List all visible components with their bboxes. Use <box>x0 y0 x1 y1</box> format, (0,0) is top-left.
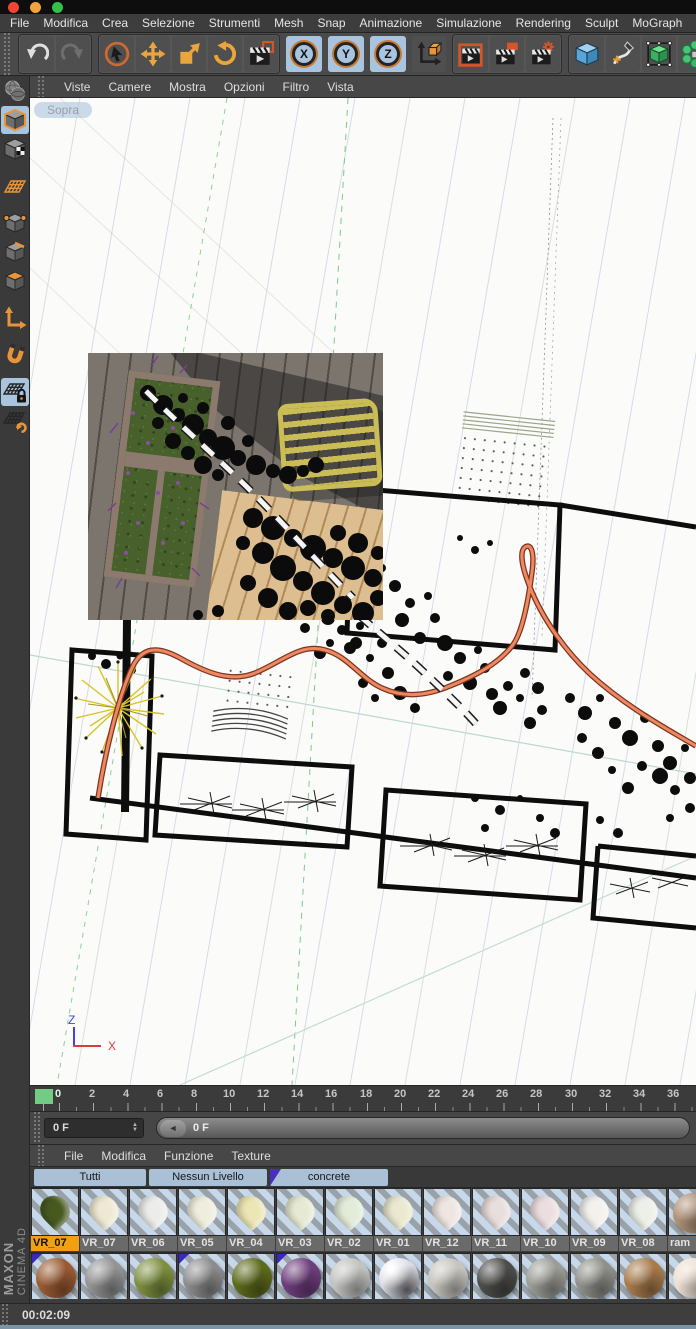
menu-file[interactable]: File <box>10 16 29 30</box>
material-item[interactable] <box>619 1253 667 1299</box>
title-bar <box>0 0 696 14</box>
layer-color-corner-icon <box>277 1254 287 1264</box>
material-sphere-preview <box>673 1258 696 1298</box>
rotate-button[interactable] <box>208 36 242 72</box>
material-item[interactable] <box>129 1253 177 1299</box>
tick-label: 8 <box>191 1088 197 1100</box>
status-bar: 00:02:09 <box>0 1303 696 1325</box>
material-item[interactable] <box>80 1253 128 1299</box>
material-label: VR_02 <box>325 1236 373 1251</box>
material-leaf-preview <box>524 1190 566 1232</box>
menu-mograph[interactable]: MoGraph <box>632 16 682 30</box>
material-sphere-preview <box>281 1258 321 1298</box>
menu-modifica[interactable]: Modifica <box>43 16 88 30</box>
create-group <box>568 34 696 74</box>
menu-snap[interactable]: Snap <box>317 16 345 30</box>
axis-z-line <box>73 1027 75 1045</box>
make-editable-button[interactable] <box>1 77 29 105</box>
menu-rendering[interactable]: Rendering <box>516 16 571 30</box>
material-label: VR_10 <box>521 1236 569 1251</box>
scale-button[interactable] <box>172 36 206 72</box>
material-label: VR_03 <box>276 1236 324 1251</box>
points-mode-icon <box>3 211 27 235</box>
tick-label: 2 <box>89 1088 95 1100</box>
right-column: Viste Camere Mostra Opzioni Filtro Vista… <box>30 76 696 1303</box>
render-time: 00:02:09 <box>22 1308 70 1322</box>
axis-x-label: X <box>108 1039 116 1053</box>
timeline-ruler[interactable]: 0 2 4 6 8 10 12 14 16 18 20 22 24 26 28 … <box>30 1085 696 1112</box>
tick-label: 30 <box>565 1088 577 1100</box>
material-item[interactable]: VR_01 <box>374 1188 422 1252</box>
slider-frame-value: 0 F <box>193 1122 209 1134</box>
maxon-branding: MAXON CINEMA 4D <box>1 1227 28 1295</box>
material-sphere-preview <box>379 1258 419 1298</box>
material-item[interactable] <box>668 1253 696 1299</box>
axis-z-label: Z <box>68 1013 75 1027</box>
undo-button[interactable] <box>20 36 54 72</box>
make-editable-icon <box>3 79 27 103</box>
axis-x-line <box>73 1045 101 1047</box>
render-view-button[interactable] <box>454 36 488 72</box>
viewport-top-view[interactable]: Sopra <box>30 98 696 1085</box>
material-leaf-preview <box>475 1190 517 1232</box>
subdivision-surface-button[interactable] <box>642 36 676 72</box>
polygons-mode-icon <box>3 269 27 293</box>
render-group <box>452 34 562 74</box>
material-label: VR_01 <box>374 1236 422 1251</box>
material-manager-menu: File Modifica Funzione Texture <box>30 1145 696 1167</box>
material-sphere-preview <box>232 1258 272 1298</box>
tick-label: 12 <box>257 1088 269 1100</box>
axis-mode-icon <box>3 306 27 330</box>
layer-tab-tutti[interactable]: Tutti <box>34 1169 146 1186</box>
render-overlay <box>88 353 383 620</box>
layer-tab-concrete[interactable]: concrete <box>270 1169 388 1186</box>
snapping-magnet-icon <box>3 343 27 367</box>
material-item[interactable] <box>374 1253 422 1299</box>
render-preview-region <box>88 353 383 620</box>
axis-x-icon: X <box>292 42 316 66</box>
stepper-down-icon[interactable]: ▼ <box>132 1128 138 1133</box>
tick-label: 14 <box>291 1088 303 1100</box>
record-keyframe-icon <box>248 41 274 67</box>
material-item[interactable] <box>276 1253 324 1299</box>
move-button[interactable] <box>136 36 170 72</box>
material-sphere-preview <box>134 1258 174 1298</box>
material-item[interactable]: VR_10 <box>521 1188 569 1252</box>
mat-menu-modifica[interactable]: Modifica <box>101 1149 146 1163</box>
material-sphere-preview <box>36 1258 76 1298</box>
move-icon <box>140 41 166 67</box>
material-item[interactable]: VR_05 <box>178 1188 226 1252</box>
live-selection-icon <box>104 41 130 67</box>
mat-menu-texture[interactable]: Texture <box>231 1149 270 1163</box>
model-mode-button[interactable] <box>1 106 29 134</box>
slider-left-arrow-icon[interactable]: ◄ <box>160 1120 186 1137</box>
tick-label: 10 <box>223 1088 235 1100</box>
tick-label: 16 <box>325 1088 337 1100</box>
material-sphere-preview <box>526 1258 566 1298</box>
material-item[interactable] <box>472 1253 520 1299</box>
layer-tab-label: concrete <box>308 1171 350 1183</box>
add-cube-button[interactable] <box>570 36 604 72</box>
layer-tab-nessun-livello[interactable]: Nessun Livello <box>149 1169 267 1186</box>
tick-label: 24 <box>462 1088 474 1100</box>
subdivision-surface-icon <box>646 41 672 67</box>
redo-icon <box>61 42 85 66</box>
viewport-menu-grip[interactable] <box>36 76 46 97</box>
tick-label: 18 <box>360 1088 372 1100</box>
material-item[interactable]: ram <box>668 1188 696 1252</box>
material-sphere-preview <box>85 1258 125 1298</box>
viewport-menu-bar: Viste Camere Mostra Opzioni Filtro Vista <box>30 76 696 98</box>
main-menu-bar: File Modifica Crea Selezione Strumenti M… <box>0 14 696 33</box>
pergola-grid-upper <box>455 412 556 508</box>
material-label: VR_08 <box>619 1236 667 1251</box>
tick-label: 32 <box>599 1088 611 1100</box>
frame-controls-grip[interactable] <box>32 1112 42 1144</box>
main-area: MAXON CINEMA 4D Viste Camere Mostra Opzi… <box>0 76 696 1303</box>
material-item[interactable] <box>423 1253 471 1299</box>
material-label: VR_05 <box>178 1236 226 1251</box>
render-footpath-dashes <box>146 391 353 598</box>
material-item[interactable]: VR_09 <box>570 1188 618 1252</box>
material-sphere-preview <box>477 1258 517 1298</box>
toolbar-grip[interactable] <box>2 33 12 75</box>
material-leaf-preview <box>377 1190 419 1232</box>
menu-simulazione[interactable]: Simulazione <box>436 16 501 30</box>
axis-z-icon: Z <box>376 42 400 66</box>
window-bottom-edge <box>0 1325 696 1329</box>
material-item[interactable] <box>227 1253 275 1299</box>
menu-mesh[interactable]: Mesh <box>274 16 303 30</box>
add-spline-button[interactable] <box>606 36 640 72</box>
material-leaf-preview <box>622 1190 664 1232</box>
material-item[interactable]: VR_04 <box>227 1188 275 1252</box>
scale-icon <box>176 41 202 67</box>
tick-label: 28 <box>530 1088 542 1100</box>
undo-group <box>18 34 92 74</box>
mat-menu-file[interactable]: File <box>64 1149 83 1163</box>
tick-label: 4 <box>123 1088 129 1100</box>
material-item[interactable] <box>178 1253 226 1299</box>
material-leaf-preview <box>279 1190 321 1232</box>
material-item[interactable]: VR_11 <box>472 1188 520 1252</box>
material-item[interactable]: VR_07 <box>31 1188 79 1252</box>
axis-z-lock-button[interactable]: Z <box>370 36 406 72</box>
material-row-2 <box>30 1253 696 1299</box>
pergola-grid-lower <box>211 668 292 739</box>
workplane-mode-button[interactable] <box>1 172 29 200</box>
layer-tab-label: Tutti <box>80 1171 101 1183</box>
vp-menu-vista[interactable]: Vista <box>327 80 353 94</box>
transform-group <box>98 34 280 74</box>
material-leaf-preview <box>426 1190 468 1232</box>
material-leaf-preview <box>181 1190 223 1232</box>
material-item[interactable]: VR_06 <box>129 1188 177 1252</box>
material-layer-tabs: Tutti Nessun Livello concrete <box>30 1167 696 1188</box>
current-frame-field[interactable]: 0 F ▲ ▼ <box>44 1118 144 1138</box>
material-sphere-preview <box>624 1258 664 1298</box>
menu-sculpt[interactable]: Sculpt <box>585 16 618 30</box>
material-label: VR_04 <box>227 1236 275 1251</box>
array-clone-icon <box>682 41 696 67</box>
tick-label: 34 <box>633 1088 645 1100</box>
render-picture-viewer-button[interactable] <box>490 36 524 72</box>
tick-label: 6 <box>157 1088 163 1100</box>
layer-tab-label: Nessun Livello <box>172 1171 244 1183</box>
axis-y-lock-button[interactable]: Y <box>328 36 364 72</box>
material-leaf-preview <box>328 1190 370 1232</box>
frame-slider[interactable]: ◄ 0 F <box>156 1117 690 1139</box>
coordinate-system-icon <box>416 41 442 67</box>
material-item[interactable] <box>31 1253 79 1299</box>
material-sphere-preview <box>575 1258 615 1298</box>
status-bar-grip[interactable] <box>0 1304 10 1325</box>
material-item[interactable]: VR_07 <box>80 1188 128 1252</box>
workplane-rotate-button[interactable] <box>1 407 29 435</box>
menu-animazione[interactable]: Animazione <box>360 16 423 30</box>
workplane-rotate-icon <box>3 409 27 433</box>
material-label: VR_12 <box>423 1236 471 1251</box>
close-window-icon[interactable] <box>8 2 19 13</box>
undo-icon <box>25 42 49 66</box>
render-picture-viewer-icon <box>494 41 520 67</box>
mat-menu-funzione[interactable]: Funzione <box>164 1149 213 1163</box>
edges-mode-button[interactable] <box>1 238 29 266</box>
material-item[interactable]: VR_02 <box>325 1188 373 1252</box>
material-item[interactable]: VR_03 <box>276 1188 324 1252</box>
model-mode-icon <box>3 108 27 132</box>
record-keyframe-button[interactable] <box>244 36 278 72</box>
tick-label: 36 <box>667 1088 679 1100</box>
cinema4d-logo-text: CINEMA 4D <box>16 1227 28 1295</box>
material-label: VR_09 <box>570 1236 618 1251</box>
minimize-window-icon[interactable] <box>30 2 41 13</box>
tick-label: 26 <box>496 1088 508 1100</box>
axis-indicator: Z X <box>66 1013 136 1059</box>
tick-label: 20 <box>394 1088 406 1100</box>
live-selection-button[interactable] <box>100 36 134 72</box>
material-leaf-preview <box>132 1190 174 1232</box>
render-settings-icon <box>530 41 556 67</box>
menu-crea[interactable]: Crea <box>102 16 128 30</box>
material-label: VR_06 <box>129 1236 177 1251</box>
frame-field-value: 0 F <box>53 1122 132 1134</box>
material-item[interactable] <box>521 1253 569 1299</box>
material-leaf-preview <box>83 1190 125 1232</box>
lock-workplane-button[interactable] <box>1 378 29 406</box>
render-view-icon <box>458 41 484 67</box>
lavender-spikes <box>108 356 209 588</box>
material-row-1: VR_07 VR_07 VR_06 VR_05 VR_04 VR_03 VR_0… <box>30 1188 696 1253</box>
texture-mode-button[interactable] <box>1 135 29 163</box>
axis-x-lock-button[interactable]: X <box>286 36 322 72</box>
material-label: VR_11 <box>472 1236 520 1251</box>
points-mode-button[interactable] <box>1 209 29 237</box>
redo-button[interactable] <box>56 36 90 72</box>
left-tool-sidebar: MAXON CINEMA 4D <box>0 76 30 1303</box>
material-item[interactable]: VR_12 <box>423 1188 471 1252</box>
add-spline-icon <box>610 41 636 67</box>
timeline-playhead[interactable] <box>35 1089 53 1104</box>
texture-mode-icon <box>3 137 27 161</box>
material-leaf-preview <box>34 1190 76 1232</box>
vp-menu-viste[interactable]: Viste <box>64 80 90 94</box>
tick-label: 22 <box>428 1088 440 1100</box>
material-item[interactable] <box>325 1253 373 1299</box>
material-sphere-preview <box>673 1193 696 1233</box>
material-item[interactable] <box>570 1253 618 1299</box>
axis-y-icon: Y <box>334 42 358 66</box>
menu-strumenti[interactable]: Strumenti <box>209 16 260 30</box>
lock-workplane-icon <box>3 380 27 404</box>
material-leaf-preview <box>573 1190 615 1232</box>
maxon-logo-text: MAXON <box>1 1227 16 1295</box>
add-cube-icon <box>574 41 600 67</box>
layer-color-corner-icon <box>179 1254 189 1264</box>
material-sphere-preview <box>428 1258 468 1298</box>
material-label: ram <box>668 1236 696 1251</box>
axis-mode-button[interactable] <box>1 304 29 332</box>
material-menu-grip[interactable] <box>36 1145 46 1166</box>
workplane-mode-icon <box>3 174 27 198</box>
material-label: VR_07 <box>80 1236 128 1251</box>
frame-stepper[interactable]: ▲ ▼ <box>132 1123 138 1133</box>
vp-menu-filtro[interactable]: Filtro <box>283 80 310 94</box>
polygons-mode-button[interactable] <box>1 267 29 295</box>
vp-menu-opzioni[interactable]: Opzioni <box>224 80 265 94</box>
snapping-button[interactable] <box>1 341 29 369</box>
material-sphere-preview <box>330 1258 370 1298</box>
material-item[interactable]: VR_08 <box>619 1188 667 1252</box>
vp-menu-camere[interactable]: Camere <box>108 80 151 94</box>
coordinate-system-button[interactable] <box>412 36 446 72</box>
array-clone-button[interactable] <box>678 36 696 72</box>
render-settings-button[interactable] <box>526 36 560 72</box>
menu-selezione[interactable]: Selezione <box>142 16 195 30</box>
edges-mode-icon <box>3 240 27 264</box>
vp-menu-mostra[interactable]: Mostra <box>169 80 206 94</box>
rotate-icon <box>212 41 238 67</box>
material-leaf-preview <box>230 1190 272 1232</box>
material-sphere-preview <box>183 1258 223 1298</box>
layer-color-corner-icon <box>32 1254 42 1264</box>
material-label-selected: VR_07 <box>31 1236 79 1251</box>
main-toolbar: X Y Z <box>0 33 696 76</box>
layer-color-corner-icon <box>270 1169 281 1186</box>
cinema4d-window: File Modifica Crea Selezione Strumenti M… <box>0 0 696 1329</box>
tick-label: 0 <box>55 1088 61 1100</box>
zoom-window-icon[interactable] <box>52 2 63 13</box>
frame-controls: 0 F ▲ ▼ ◄ 0 F <box>30 1112 696 1145</box>
view-name-label: Sopra <box>34 102 92 118</box>
